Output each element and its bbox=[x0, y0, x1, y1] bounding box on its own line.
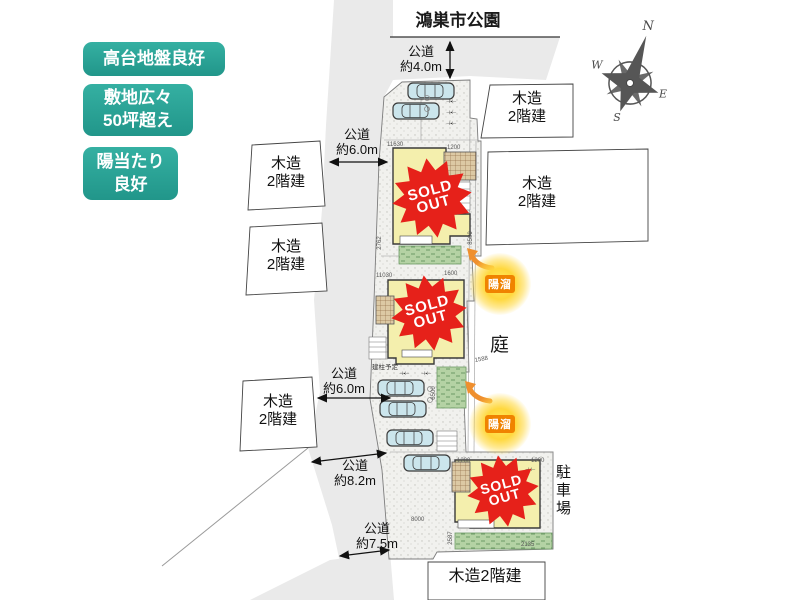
dim-label: 1600 bbox=[444, 271, 458, 277]
compass-icon: N S E W bbox=[573, 4, 690, 138]
road-flare-bottom bbox=[250, 552, 394, 600]
neighbor-label-right1: 木造 2階建 bbox=[487, 90, 567, 126]
compass-s: S bbox=[613, 111, 621, 124]
road-label-6m-mid: 公道 約6.0m bbox=[316, 366, 372, 396]
stall-mark: ⊣▪⊢ bbox=[446, 110, 456, 116]
car-icon bbox=[387, 430, 433, 446]
neighbor-label-left2: 木造 2階建 bbox=[246, 238, 326, 274]
compass-n: N bbox=[642, 19, 655, 34]
garden-patch-2 bbox=[437, 367, 466, 408]
car-icon bbox=[404, 455, 450, 471]
dim-label: 2135 bbox=[521, 542, 535, 548]
garden-patch-3 bbox=[455, 533, 552, 549]
dim-label: 11030 bbox=[376, 273, 393, 279]
sun-spot-label: 陽溜 bbox=[485, 275, 515, 293]
neighbor-label-left1: 木造 2階建 bbox=[246, 155, 326, 191]
pole-note-label: 建柱予定 bbox=[372, 362, 399, 371]
stairs-icon-2 bbox=[437, 431, 457, 451]
parking-lot-label: 駐車場 bbox=[552, 464, 573, 548]
dim-label: 11630 bbox=[387, 142, 404, 148]
car-icon bbox=[380, 401, 426, 417]
road-label-7m: 公道 約7.5m bbox=[349, 521, 405, 551]
road-label-6m-top: 公道 約6.0m bbox=[329, 127, 385, 157]
feature-badge-lot-size: 敷地広々 50坪超え bbox=[83, 84, 193, 136]
car-icon bbox=[408, 83, 454, 99]
sun-spot-badge-2: 陽溜 bbox=[469, 393, 531, 455]
dim-label: 1200 bbox=[457, 458, 471, 464]
car-icon bbox=[378, 380, 424, 396]
stall-mark: ⊣▪⊢ bbox=[446, 121, 456, 127]
sun-spot-badge-1: 陽溜 bbox=[469, 253, 531, 315]
dim-label: 1200 bbox=[447, 145, 461, 151]
park-label: 鴻巣市公園 bbox=[406, 6, 510, 31]
car-icon bbox=[393, 103, 439, 119]
feature-badge-ground: 高台地盤良好 bbox=[83, 42, 225, 76]
neighbor-label-left3: 木造 2階建 bbox=[238, 393, 318, 429]
neighbor-label-right2: 木造 2階建 bbox=[497, 175, 577, 211]
garden-patch-1 bbox=[399, 246, 461, 264]
dim-label: 8500 bbox=[468, 231, 474, 245]
stairs-icon-1 bbox=[369, 337, 386, 359]
dim-label: 2762 bbox=[377, 236, 383, 250]
stall-mark: ⊣▪⊢ bbox=[446, 99, 456, 105]
stall-mark: ⊣▪⊢ bbox=[421, 371, 431, 377]
compass-e: E bbox=[658, 88, 667, 101]
compass-w: W bbox=[591, 58, 604, 71]
road-boundary-line bbox=[162, 448, 308, 566]
dim-label: 8000 bbox=[411, 517, 425, 523]
dim-label: 6500 bbox=[431, 386, 437, 400]
road-label-8m: 公道 約8.2m bbox=[327, 458, 383, 488]
dim-label: 2587 bbox=[448, 531, 454, 545]
road-label-4m: 公道 約4.0m bbox=[393, 44, 449, 74]
stall-mark: ⊣▪⊢ bbox=[399, 371, 409, 377]
sun-spot-label: 陽溜 bbox=[485, 415, 515, 433]
dim-label: 1588 bbox=[474, 356, 489, 364]
feature-badge-sunlight: 陽当たり 良好 bbox=[83, 147, 178, 200]
neighbor-label-bottom: 木造2階建 bbox=[433, 568, 537, 586]
garden-label: 庭 bbox=[490, 330, 509, 357]
dim-label: 1200 bbox=[531, 458, 545, 464]
site-plan: 11630 1200 2762 8500 11030 1600 6500 158… bbox=[0, 0, 800, 600]
